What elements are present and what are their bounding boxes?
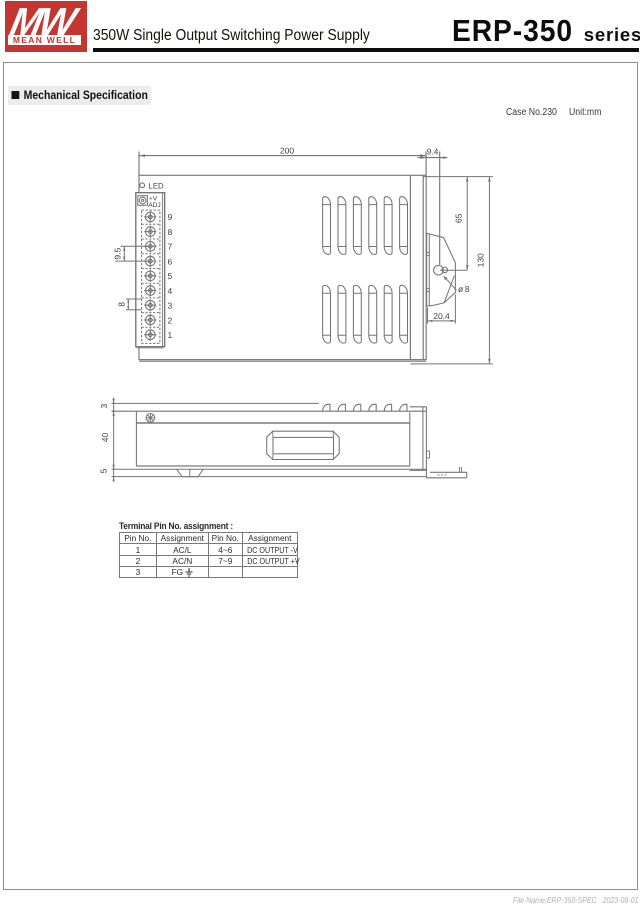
svg-text:9.4: 9.4 [427,147,439,157]
svg-text:200: 200 [280,145,294,155]
svg-text:ø 8: ø 8 [458,284,470,294]
svg-text:7: 7 [168,242,173,252]
svg-text:40: 40 [100,433,110,443]
svg-text:3: 3 [99,404,109,409]
svg-text:130: 130 [476,253,486,267]
svg-text:ADJ: ADJ [148,202,160,209]
svg-text:4: 4 [168,286,173,296]
svg-text:3: 3 [168,301,173,311]
svg-text:20.4: 20.4 [433,311,450,321]
svg-text:5: 5 [168,271,173,281]
svg-text:8: 8 [168,227,173,237]
svg-text:8: 8 [117,302,127,307]
svg-text:65: 65 [454,213,464,223]
svg-text:2: 2 [168,315,173,325]
svg-text:1: 1 [168,330,173,340]
svg-text:5: 5 [99,468,109,473]
svg-text:LED: LED [149,182,165,191]
svg-text:6: 6 [168,256,173,266]
svg-text:9.5: 9.5 [113,248,123,260]
svg-text:9: 9 [168,212,173,222]
